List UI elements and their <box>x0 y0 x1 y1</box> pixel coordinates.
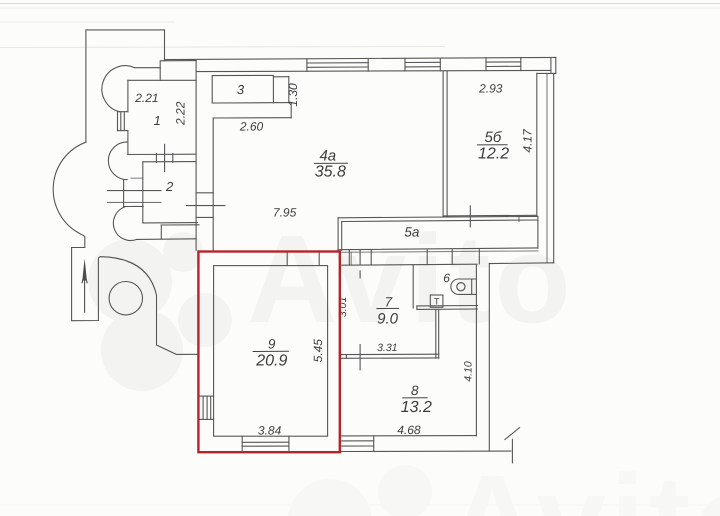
svg-text:T: T <box>434 296 440 306</box>
svg-text:2.21: 2.21 <box>134 91 158 105</box>
svg-text:9.0: 9.0 <box>377 310 399 327</box>
svg-text:2.60: 2.60 <box>239 120 264 134</box>
svg-text:3: 3 <box>237 82 245 97</box>
svg-text:13.2: 13.2 <box>401 399 432 416</box>
svg-text:5a: 5a <box>404 225 420 240</box>
svg-text:5.45: 5.45 <box>311 339 325 363</box>
svg-text:1: 1 <box>154 113 161 128</box>
svg-text:35.8: 35.8 <box>315 163 346 180</box>
svg-text:Avito: Avito <box>447 450 720 516</box>
svg-text:12.2: 12.2 <box>478 145 509 162</box>
svg-text:3.31: 3.31 <box>377 342 397 354</box>
svg-text:4a: 4a <box>319 148 336 165</box>
svg-text:9: 9 <box>268 336 276 351</box>
svg-text:7: 7 <box>385 294 393 309</box>
svg-text:5б: 5б <box>485 129 502 146</box>
svg-text:2.93: 2.93 <box>478 82 503 96</box>
svg-text:4.10: 4.10 <box>462 361 474 382</box>
svg-text:4.17: 4.17 <box>521 128 535 153</box>
svg-text:20.9: 20.9 <box>255 352 287 369</box>
svg-text:3.84: 3.84 <box>258 423 282 437</box>
svg-text:8: 8 <box>411 383 419 398</box>
svg-text:7.95: 7.95 <box>273 206 297 220</box>
svg-text:2: 2 <box>165 179 174 194</box>
svg-text:4.68: 4.68 <box>397 423 421 437</box>
svg-text:1.30: 1.30 <box>286 83 300 107</box>
svg-text:6: 6 <box>443 271 450 285</box>
svg-text:2.22: 2.22 <box>174 101 188 126</box>
